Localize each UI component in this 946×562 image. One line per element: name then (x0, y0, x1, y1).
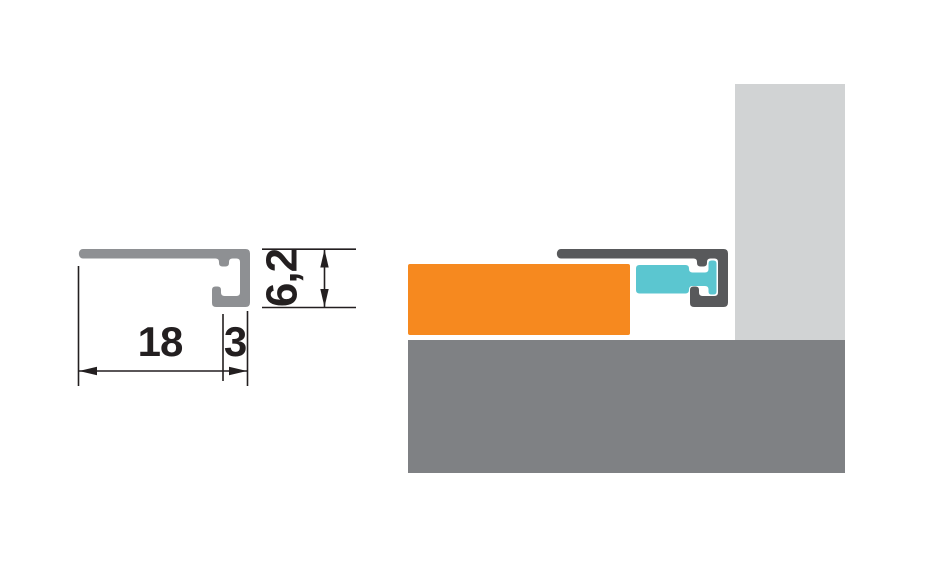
dim-height-label: 6,2 (258, 249, 307, 307)
height-dimension: 6,2 (258, 249, 357, 308)
profile-cross-section (79, 249, 250, 307)
diagram-svg: 18 3 6,2 (0, 0, 946, 562)
dim-lip-label: 3 (224, 318, 246, 365)
arrowhead-left-icon (79, 367, 97, 375)
arrowhead-down-icon (320, 289, 328, 307)
width-dimension: 18 3 (79, 266, 248, 386)
installation-view (408, 84, 845, 473)
technical-drawing-canvas: 18 3 6,2 (0, 0, 946, 562)
floor (408, 340, 845, 473)
tile (408, 264, 630, 335)
arrowhead-right-icon (229, 367, 247, 375)
arrowhead-up-icon (320, 250, 328, 268)
dim-width-label: 18 (138, 318, 183, 365)
wall (735, 84, 845, 340)
profile-section-view: 18 3 6,2 (79, 249, 357, 386)
